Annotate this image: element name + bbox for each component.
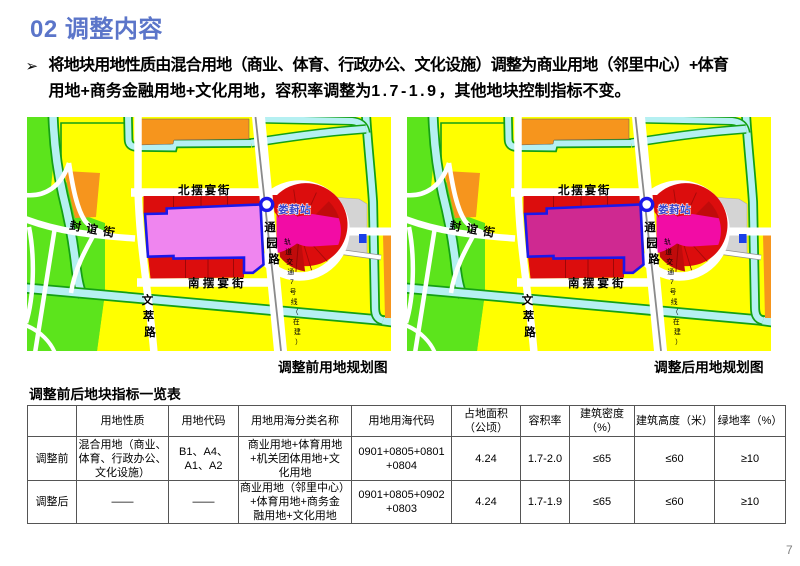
svg-text:北摆宴街: 北摆宴街 — [178, 183, 231, 197]
svg-text:北摆宴街: 北摆宴街 — [558, 183, 611, 197]
svg-text:南摆宴街: 南摆宴街 — [188, 276, 247, 290]
svg-text:南摆宴街: 南摆宴街 — [568, 276, 627, 290]
svg-text:娄葑站: 娄葑站 — [278, 203, 311, 216]
svg-text:娄葑站: 娄葑站 — [658, 203, 691, 216]
